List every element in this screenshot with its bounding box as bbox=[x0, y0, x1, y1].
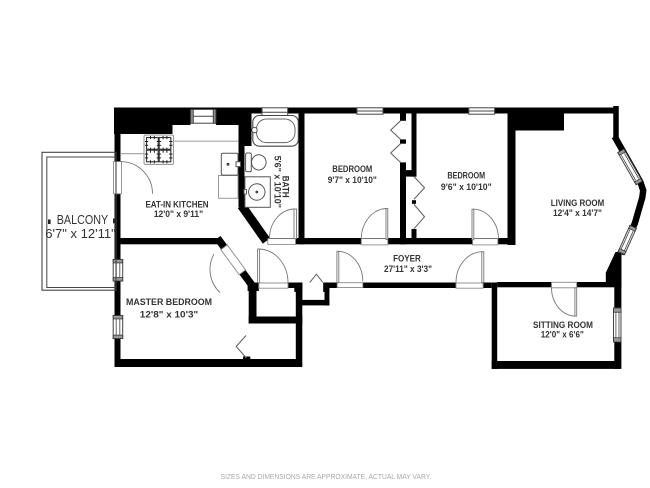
svg-text:12'0" x 6'6": 12'0" x 6'6" bbox=[541, 330, 584, 340]
svg-text:9'7" x 10'10": 9'7" x 10'10" bbox=[328, 175, 377, 185]
svg-text:12'4" x 14'7": 12'4" x 14'7" bbox=[553, 208, 602, 218]
svg-text:SIZES AND DIMENSIONS ARE APPRO: SIZES AND DIMENSIONS ARE APPROXIMATE, AC… bbox=[221, 472, 432, 481]
svg-text:12'0" x 9'11": 12'0" x 9'11" bbox=[154, 209, 203, 219]
svg-text:BEDROOM: BEDROOM bbox=[332, 164, 372, 174]
svg-text:FOYER: FOYER bbox=[393, 254, 421, 264]
svg-text:MASTER BEDROOM: MASTER BEDROOM bbox=[126, 297, 212, 307]
svg-text:9'6" x 10'10": 9'6" x 10'10" bbox=[441, 182, 492, 192]
svg-text:EAT-IN KITCHEN: EAT-IN KITCHEN bbox=[146, 199, 209, 209]
svg-text:BALCONY: BALCONY bbox=[57, 213, 109, 227]
svg-text:12'8" x 10'3": 12'8" x 10'3" bbox=[140, 309, 198, 319]
svg-text:BEDROOM: BEDROOM bbox=[447, 171, 485, 181]
svg-text:5'6" x 10'10": 5'6" x 10'10" bbox=[272, 156, 282, 208]
svg-text:LIVING ROOM: LIVING ROOM bbox=[551, 198, 605, 208]
svg-text:6'7" x 12'11": 6'7" x 12'11" bbox=[45, 227, 116, 241]
svg-text:27'11" x 3'3": 27'11" x 3'3" bbox=[384, 264, 432, 274]
